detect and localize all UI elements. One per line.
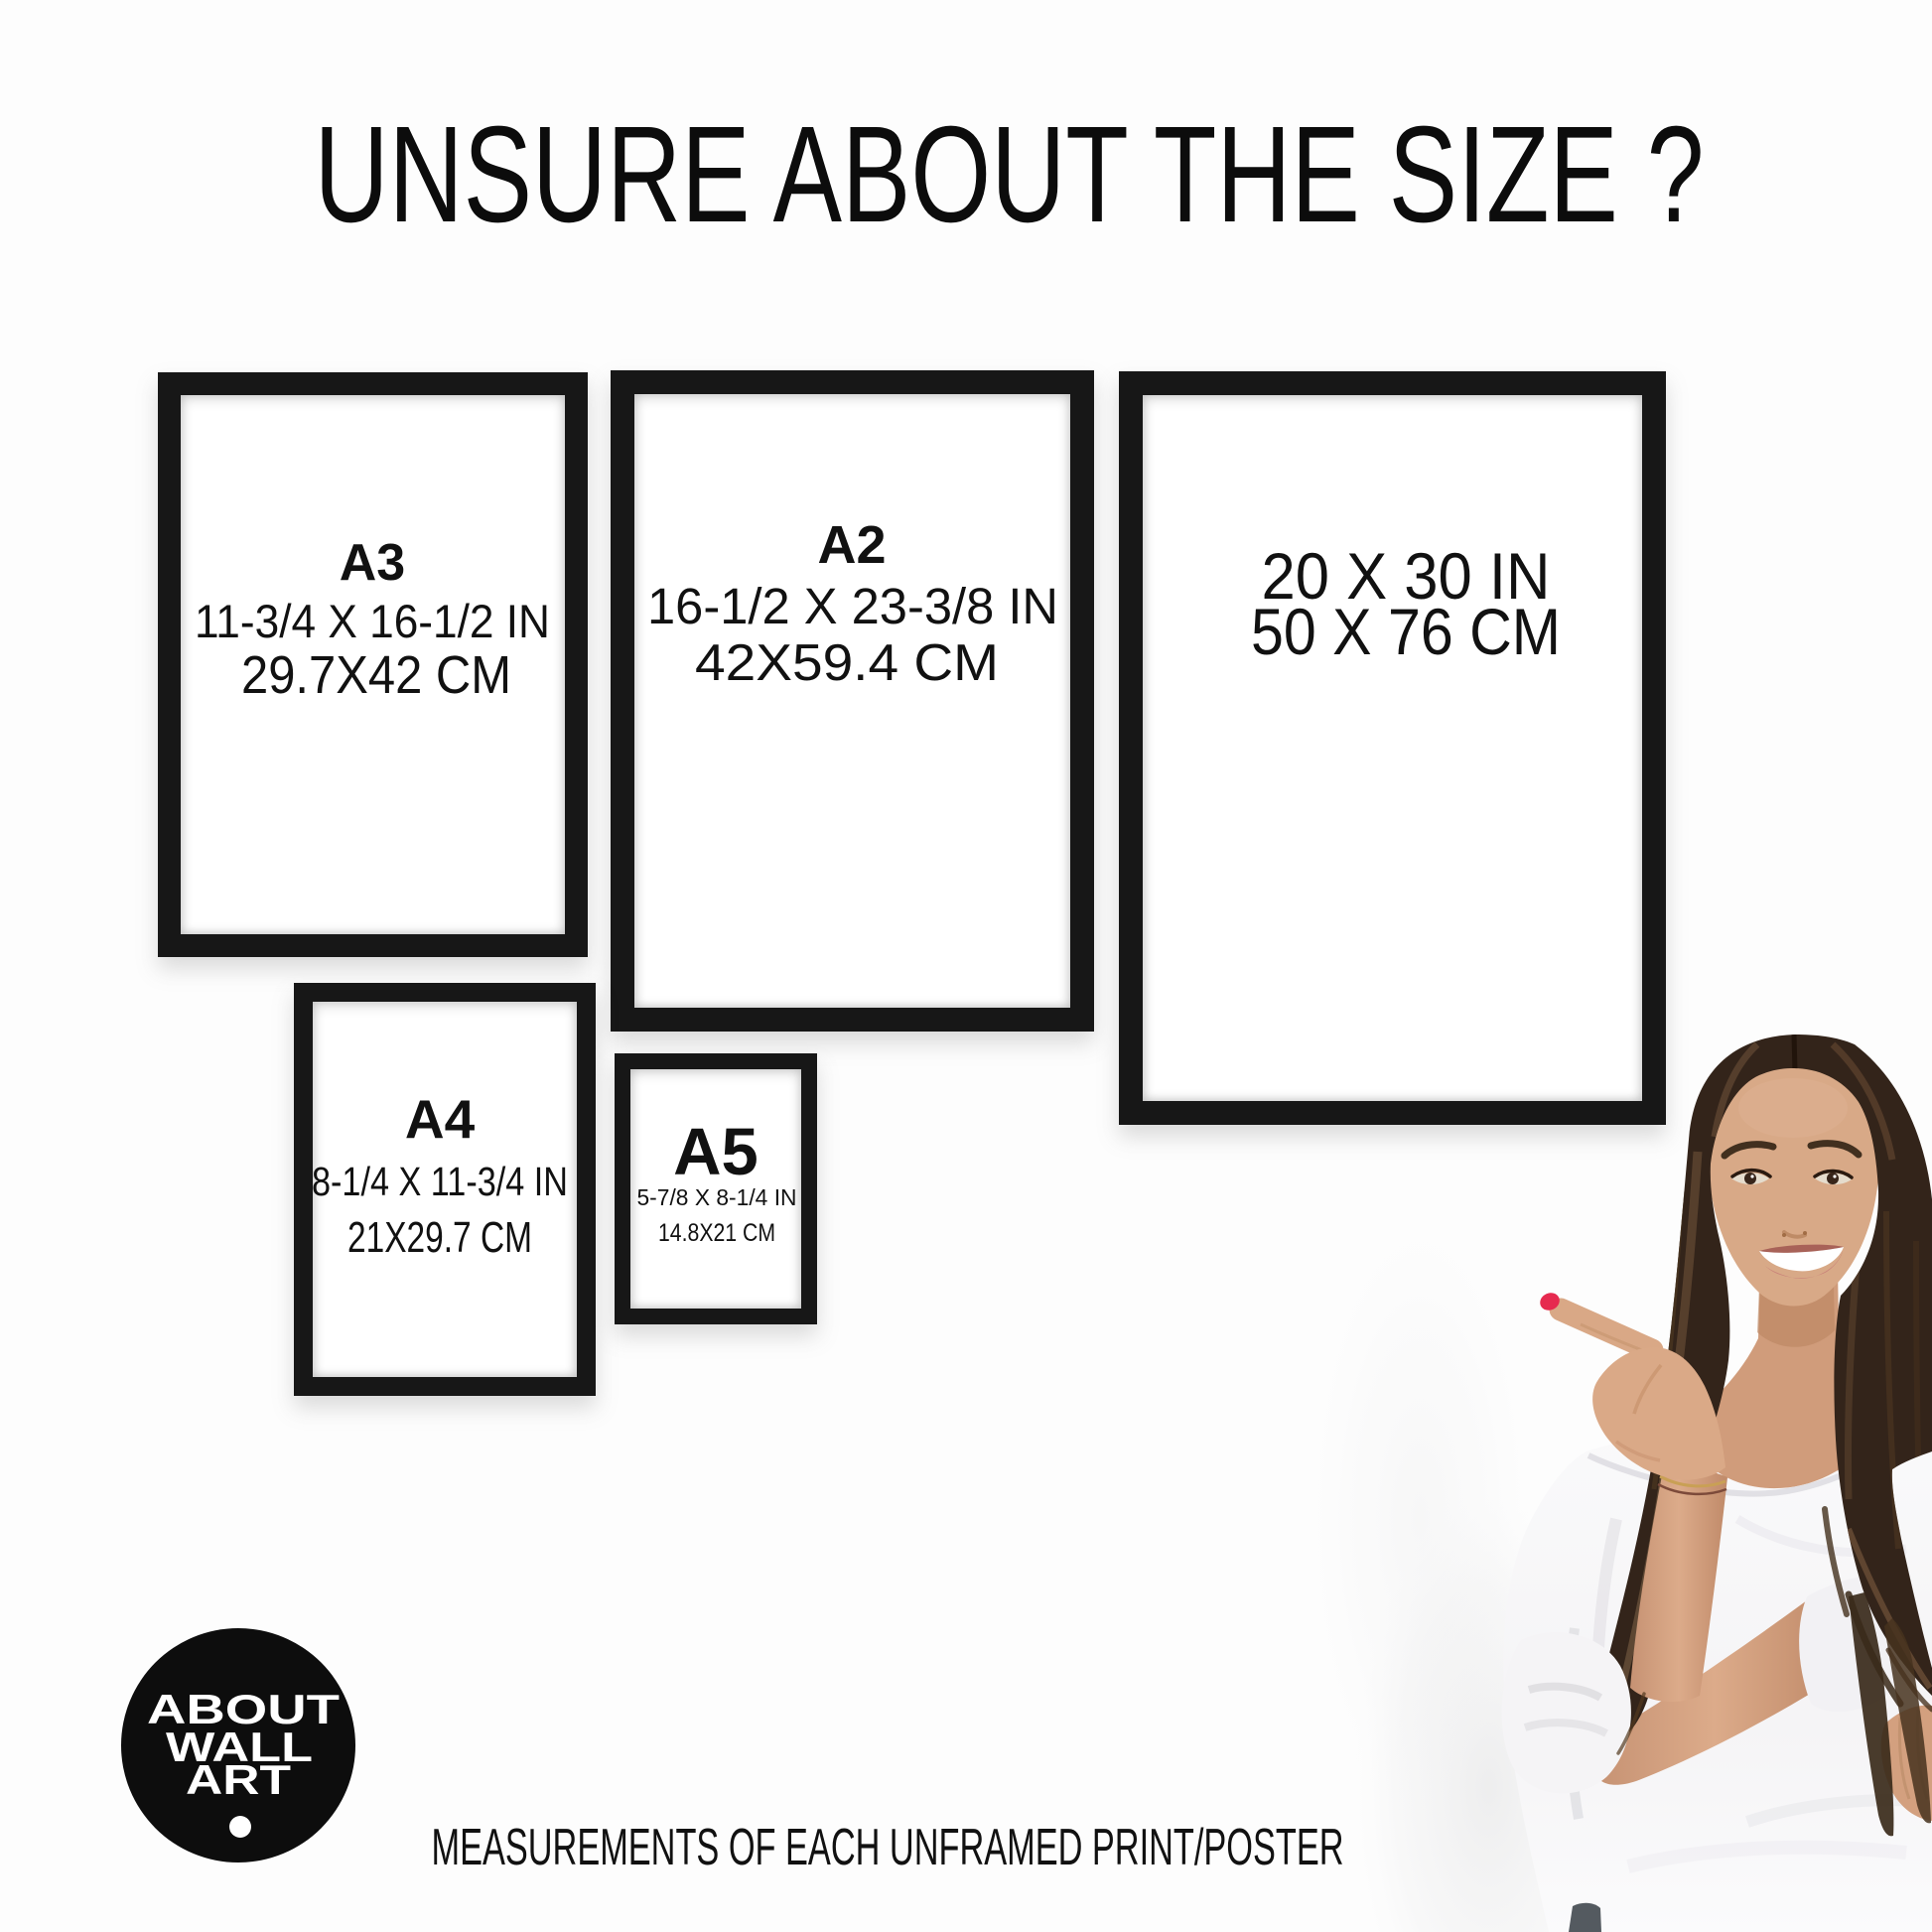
svg-text:A3: A3 bbox=[340, 534, 405, 592]
svg-text:A2: A2 bbox=[817, 515, 886, 575]
svg-text:5-7/8 X 8-1/4 IN: 5-7/8 X 8-1/4 IN bbox=[637, 1184, 797, 1210]
svg-text:A5: A5 bbox=[673, 1115, 759, 1189]
svg-text:16-1/2 X 23-3/8 IN: 16-1/2 X 23-3/8 IN bbox=[647, 578, 1058, 634]
svg-text:8-1/4 X 11-3/4 IN: 8-1/4 X 11-3/4 IN bbox=[312, 1159, 568, 1204]
svg-text:29.7X42 CM: 29.7X42 CM bbox=[241, 645, 511, 705]
svg-text:14.8X21 CM: 14.8X21 CM bbox=[658, 1219, 775, 1247]
svg-text:A4: A4 bbox=[405, 1088, 476, 1150]
svg-text:50 X 76 CM: 50 X 76 CM bbox=[1251, 595, 1561, 668]
svg-text:21X29.7 CM: 21X29.7 CM bbox=[347, 1213, 532, 1262]
svg-text:MEASUREMENTS OF EACH UNFRAMED: MEASUREMENTS OF EACH UNFRAMED PRINT/POST… bbox=[432, 1819, 1344, 1876]
svg-text:42X59.4 CM: 42X59.4 CM bbox=[695, 634, 999, 692]
svg-text:ART: ART bbox=[186, 1756, 291, 1803]
svg-text:11-3/4 X 16-1/2 IN: 11-3/4 X 16-1/2 IN bbox=[195, 595, 550, 647]
